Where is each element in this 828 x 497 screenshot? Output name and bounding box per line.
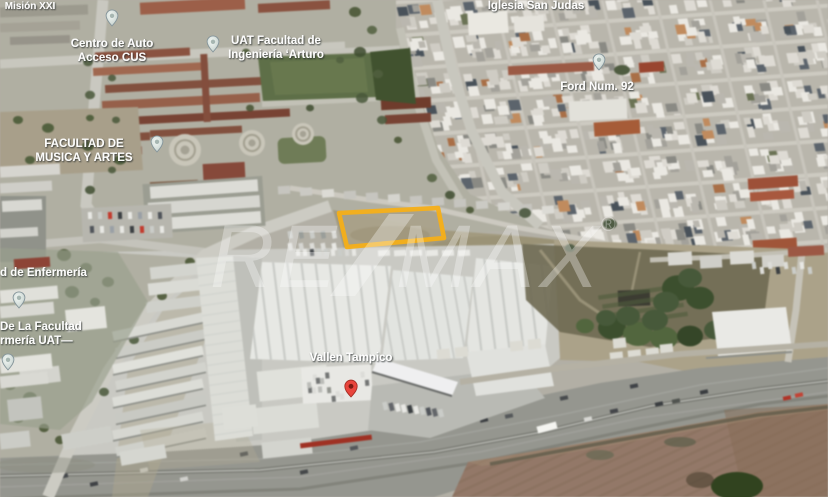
svg-text:Acceso CUS: Acceso CUS	[78, 52, 147, 64]
svg-text:Ford Num. 92: Ford Num. 92	[560, 81, 633, 93]
svg-text:MUSICA Y ARTES: MUSICA Y ARTES	[35, 152, 132, 164]
svg-text:RE: RE	[210, 206, 340, 306]
svg-text:d de Enfermería: d de Enfermería	[0, 267, 88, 279]
svg-text:De La Facultad: De La Facultad	[0, 321, 82, 333]
svg-text:Ingeniería ‘Arturo: Ingeniería ‘Arturo	[228, 49, 324, 61]
svg-text:Iglesia San Judas: Iglesia San Judas	[488, 0, 585, 12]
svg-text:®: ®	[601, 214, 616, 236]
svg-text:Vallen Tampico: Vallen Tampico	[310, 352, 393, 364]
svg-text:UAT Facultad de: UAT Facultad de	[231, 35, 321, 47]
svg-text:Centro de Auto: Centro de Auto	[71, 38, 154, 50]
svg-text:rmería UAT—: rmería UAT—	[0, 335, 73, 347]
svg-text:Misión XXI: Misión XXI	[5, 1, 56, 12]
svg-text:MAX: MAX	[396, 206, 604, 306]
svg-text:FACULTAD DE: FACULTAD DE	[44, 138, 124, 150]
